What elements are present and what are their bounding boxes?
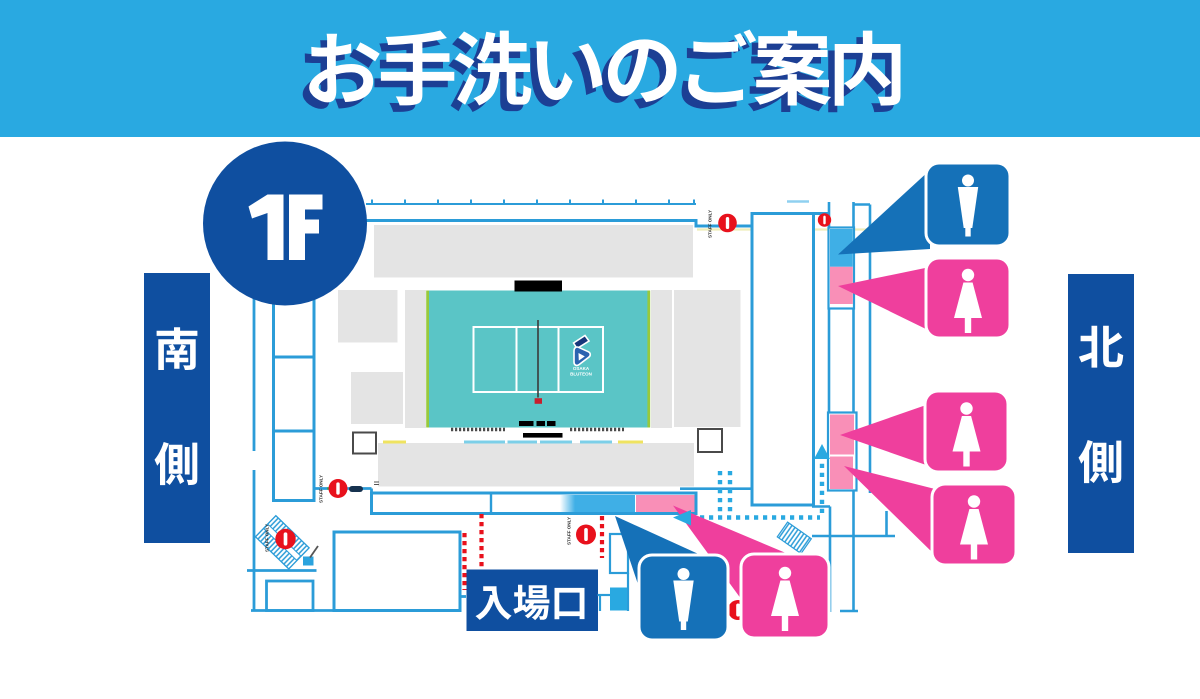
svg-text:OSAKA: OSAKA [573, 366, 590, 371]
svg-text:STAFF ONLY: STAFF ONLY [708, 210, 713, 238]
svg-text:STAFF ONLY: STAFF ONLY [265, 524, 270, 552]
svg-text:STAFF ONLY: STAFF ONLY [319, 475, 324, 503]
svg-text:STAFF ONLY: STAFF ONLY [567, 517, 572, 545]
svg-text:BLUTEON: BLUTEON [570, 372, 592, 377]
